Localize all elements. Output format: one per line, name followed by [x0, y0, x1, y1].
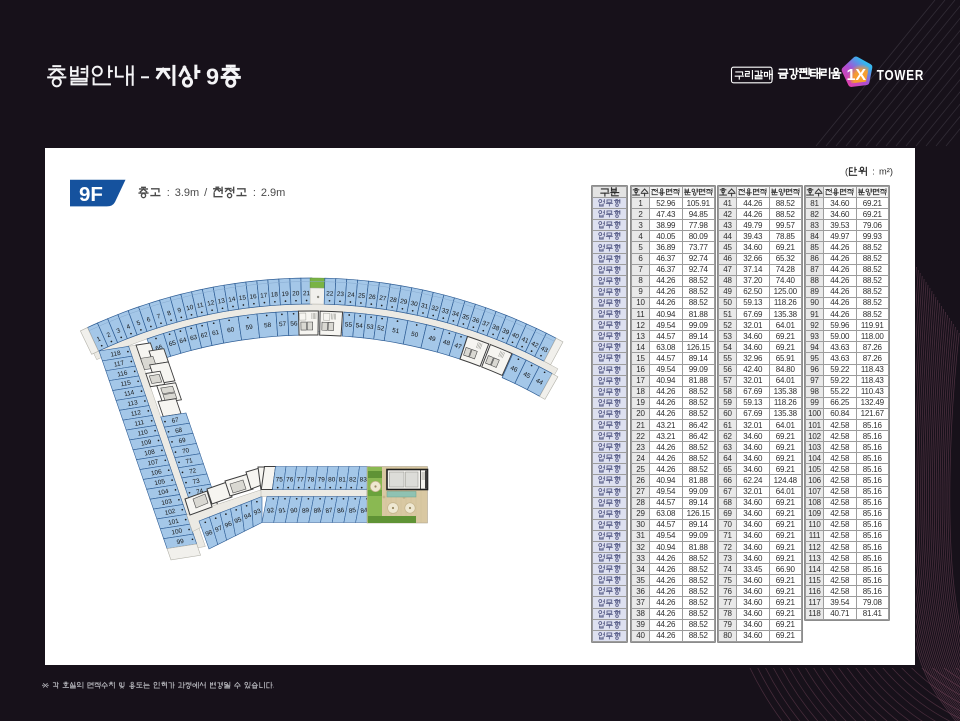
- svg-text:1X: 1X: [847, 67, 867, 84]
- svg-text:59: 59: [245, 324, 253, 332]
- svg-text:25: 25: [358, 292, 366, 300]
- svg-text:55: 55: [345, 321, 353, 329]
- svg-text:TOWER: TOWER: [877, 67, 924, 84]
- svg-text:79: 79: [318, 477, 326, 484]
- svg-text:76: 76: [286, 477, 294, 484]
- svg-text:53: 53: [366, 323, 374, 331]
- svg-text:75: 75: [276, 477, 284, 484]
- svg-text:23: 23: [337, 291, 345, 298]
- svg-text:18: 18: [271, 291, 279, 299]
- svg-text::: :: [253, 187, 256, 199]
- svg-text:m²): m²): [879, 167, 893, 177]
- svg-text:78: 78: [307, 477, 315, 484]
- svg-text:27: 27: [379, 295, 387, 303]
- svg-text:58: 58: [264, 322, 272, 330]
- svg-text:83: 83: [360, 477, 368, 484]
- svg-text:20: 20: [292, 290, 300, 297]
- svg-text:21: 21: [303, 290, 311, 297]
- svg-text:22: 22: [326, 290, 334, 297]
- svg-text:80: 80: [328, 477, 336, 484]
- svg-text:2.9m: 2.9m: [261, 187, 285, 199]
- svg-text:16: 16: [249, 293, 257, 301]
- svg-text::: :: [167, 187, 170, 199]
- svg-text:57: 57: [279, 321, 287, 328]
- svg-text:81: 81: [339, 477, 347, 484]
- svg-text:9: 9: [206, 64, 219, 90]
- svg-text::: :: [872, 167, 875, 177]
- svg-text:3.9m: 3.9m: [175, 187, 199, 199]
- svg-text:24: 24: [347, 292, 355, 300]
- svg-text:26: 26: [368, 293, 376, 301]
- svg-text:.: .: [273, 683, 275, 690]
- svg-text:82: 82: [349, 477, 357, 484]
- svg-text:15: 15: [239, 294, 247, 302]
- svg-text:17: 17: [260, 292, 268, 300]
- svg-text:19: 19: [281, 291, 289, 298]
- svg-text:77: 77: [297, 477, 305, 484]
- svg-text:9F: 9F: [79, 183, 103, 206]
- svg-text:56: 56: [290, 320, 298, 327]
- svg-text:54: 54: [355, 322, 363, 330]
